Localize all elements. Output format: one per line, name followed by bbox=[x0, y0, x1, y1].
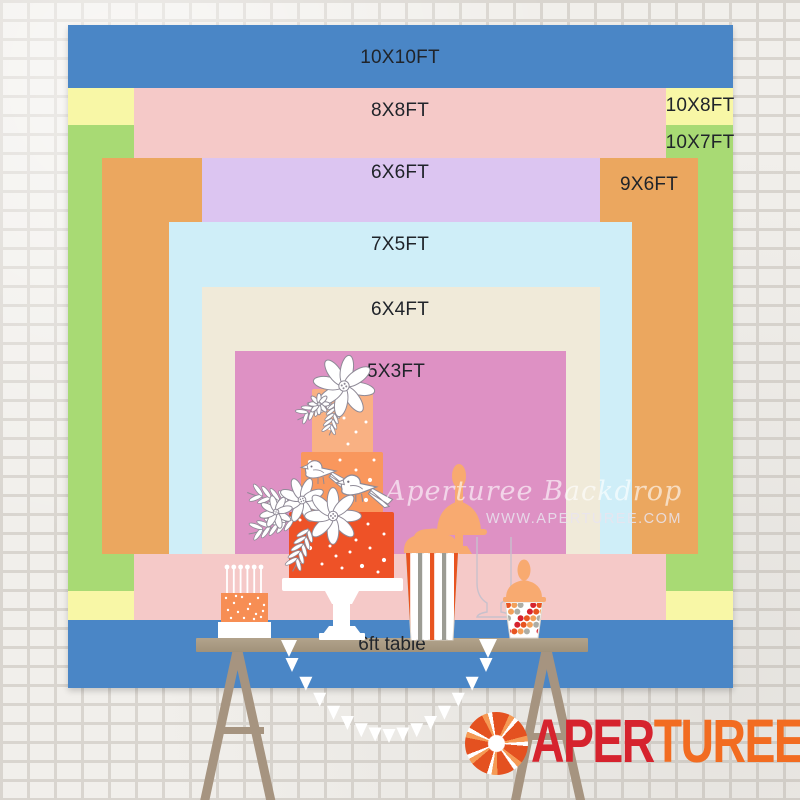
bunting-garland bbox=[281, 639, 497, 743]
product-image: 10X10FT 8X8FT 10X8FT 10X7FT 9X6FT 6X6FT … bbox=[0, 0, 800, 800]
brand-logo-part1: APER bbox=[531, 707, 654, 775]
cake-stand-icon bbox=[282, 578, 403, 640]
watermark-url: WWW.APERTUREE.COM bbox=[486, 511, 682, 527]
candy-jar-icon bbox=[503, 560, 546, 639]
popcorn-cup-icon bbox=[404, 529, 459, 642]
watermark-script: Aperturee Backdrop bbox=[386, 476, 683, 507]
aperture-logo-icon bbox=[465, 712, 528, 775]
brand-logo-part2: TUREE bbox=[654, 707, 800, 775]
mini-cake-icon bbox=[218, 565, 271, 638]
candles bbox=[225, 565, 264, 595]
brand-logo-text: APERTUREE bbox=[531, 711, 800, 772]
tiered-cake-icon bbox=[0, 0, 403, 640]
dessert-illustration bbox=[0, 0, 800, 800]
